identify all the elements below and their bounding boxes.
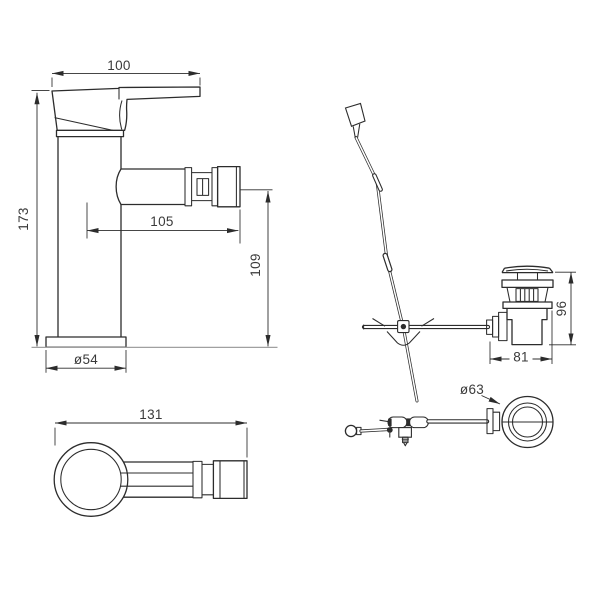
top-view-spout-outer [123,462,193,497]
waste-inlet-1 [499,312,507,340]
linkage-pill-2 [409,417,428,428]
dim-base-diameter: ø54 [46,350,126,373]
dim-label-131: 131 [139,407,162,422]
top-view-body-inner-circle [61,449,121,509]
faucet-handle-outline [52,87,200,130]
faucet-handle-boss-arc [120,101,122,130]
lift-rod-neck [353,124,360,138]
dim-spout-outlet-height: 109 [240,190,273,347]
waste-neck-slants [507,287,548,302]
waste-flange-1 [502,280,553,287]
dim-label-81: 81 [513,350,529,365]
dim-waste-width: 81 [490,311,552,365]
dim-handle-length: 100 [52,58,200,87]
faucet-top-view: 131 [54,407,247,516]
faucet-handle-underside-line [55,118,113,131]
waste-body-tailpipe [507,308,547,344]
link-stub [380,420,389,421]
linkage-mid-nub [406,418,410,426]
linkage-left-nub [388,419,391,426]
top-view-spout-ring [193,461,202,497]
dim-label-100: 100 [107,58,130,73]
dim-flange-diameter: ø63 [460,382,500,404]
waste-body [487,266,553,344]
top-view-body-outer-circle [54,443,128,517]
technical-drawing-canvas: 100 173 105 109 ø54 [0,0,600,600]
top-view-aerator-lines [220,461,244,499]
pull-knob [345,425,356,436]
technical-drawing-page: 100 173 105 109 ø54 [0,0,600,600]
top-view-aerator [213,461,247,499]
dim-spout-reach: 105 [87,203,240,244]
dim-label-d54: ø54 [74,352,98,367]
top-view-spout-mid [202,464,213,494]
waste-flange-2 [503,302,552,308]
dim-label-96: 96 [554,301,569,317]
linkage-block [399,428,412,438]
faucet-collar [57,130,124,136]
faucet-base-plate [46,337,126,347]
waste-inlet-2 [493,316,499,337]
dim-overall-height: 173 [16,91,50,347]
dim-label-173: 173 [16,207,31,230]
linkage-screw [403,437,408,442]
faucet-spout [116,169,185,205]
dim-label-105: 105 [150,214,173,229]
spout-ring-2 [212,168,218,206]
spout-ring-1 [185,168,192,206]
top-view-spout-inner [120,473,193,486]
faucet-side-view: 100 173 105 109 ø54 [16,58,278,373]
waste-side-view: 96 81 [346,104,577,402]
dim-label-d63: ø63 [460,382,484,397]
faucet-body-column [58,137,121,337]
waste-grille [516,289,538,302]
waste-top-view: ø63 [345,382,553,448]
pivot-clamp-nut [401,324,406,329]
dim-label-109: 109 [248,253,263,276]
lift-rod [356,138,417,402]
waste-cap-inner-line [506,269,548,271]
waste-cap-stem [518,273,538,280]
flange-connector-2 [493,412,500,430]
lift-rod-knob [346,104,366,127]
waste-grille-slots [520,289,533,302]
